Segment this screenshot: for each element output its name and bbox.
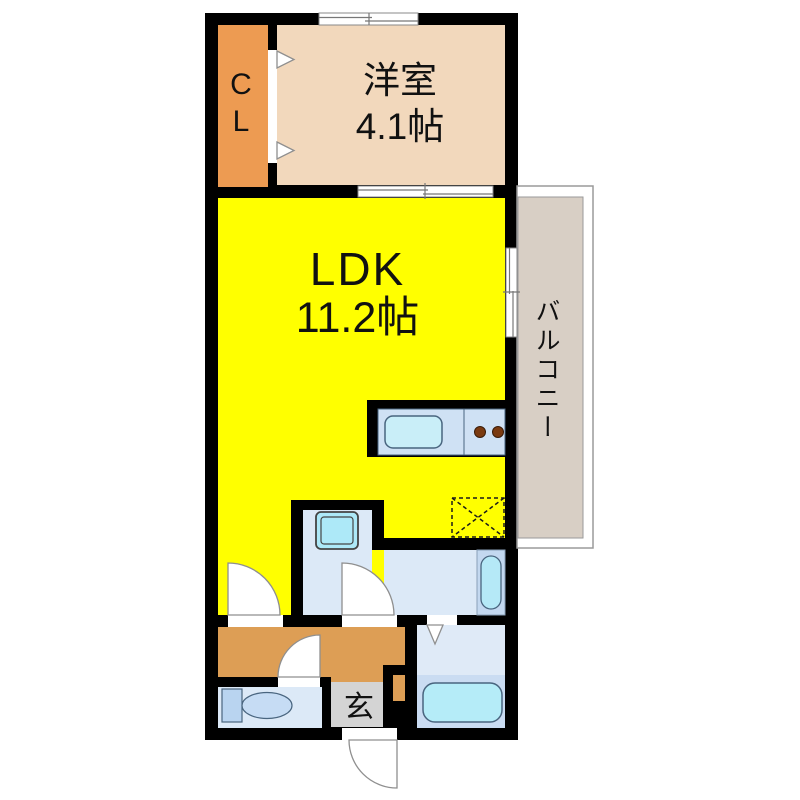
washroom <box>384 550 477 615</box>
kitchen-counter <box>367 400 505 457</box>
kitchen-sink-icon <box>385 416 442 448</box>
washbasin-icon <box>481 556 501 609</box>
bathtub-icon <box>423 683 502 722</box>
window <box>319 13 418 25</box>
closet-door-opening <box>268 50 277 163</box>
ldk-label: LDK 11.2帖 <box>240 244 475 342</box>
window <box>503 248 520 337</box>
floor-plan: CL 洋室 4.1帖 LDK 11.2帖 バルコニー 玄 <box>0 0 800 800</box>
wall-segment <box>291 500 303 627</box>
pipe-space <box>393 675 405 701</box>
stove-burner-icon <box>493 427 504 438</box>
entrance-label: 玄 <box>339 687 379 729</box>
bathroom-door-opening <box>427 615 457 625</box>
western-room-label: 洋室 4.1帖 <box>305 58 495 150</box>
ldk-door-opening <box>228 615 283 627</box>
wall-segment <box>384 538 505 550</box>
washing-machine-icon <box>316 512 358 549</box>
western-room-size: 4.1帖 <box>305 104 495 150</box>
entrance-door-opening <box>342 728 397 740</box>
ldk-name: LDK <box>240 244 475 294</box>
balcony-label: バルコニー <box>528 298 560 548</box>
western-room-name: 洋室 <box>305 58 495 104</box>
closet-label: CL <box>226 66 256 140</box>
toilet-door-opening <box>278 677 320 687</box>
wall-segment <box>393 665 405 675</box>
ldk-size: 11.2帖 <box>240 294 475 342</box>
wall-segment <box>383 701 405 711</box>
entrance-door-arc <box>349 740 397 788</box>
wall-segment <box>303 500 372 510</box>
wall-segment <box>372 500 384 550</box>
washroom-door-opening <box>342 615 397 627</box>
stove-burner-icon <box>475 427 486 438</box>
